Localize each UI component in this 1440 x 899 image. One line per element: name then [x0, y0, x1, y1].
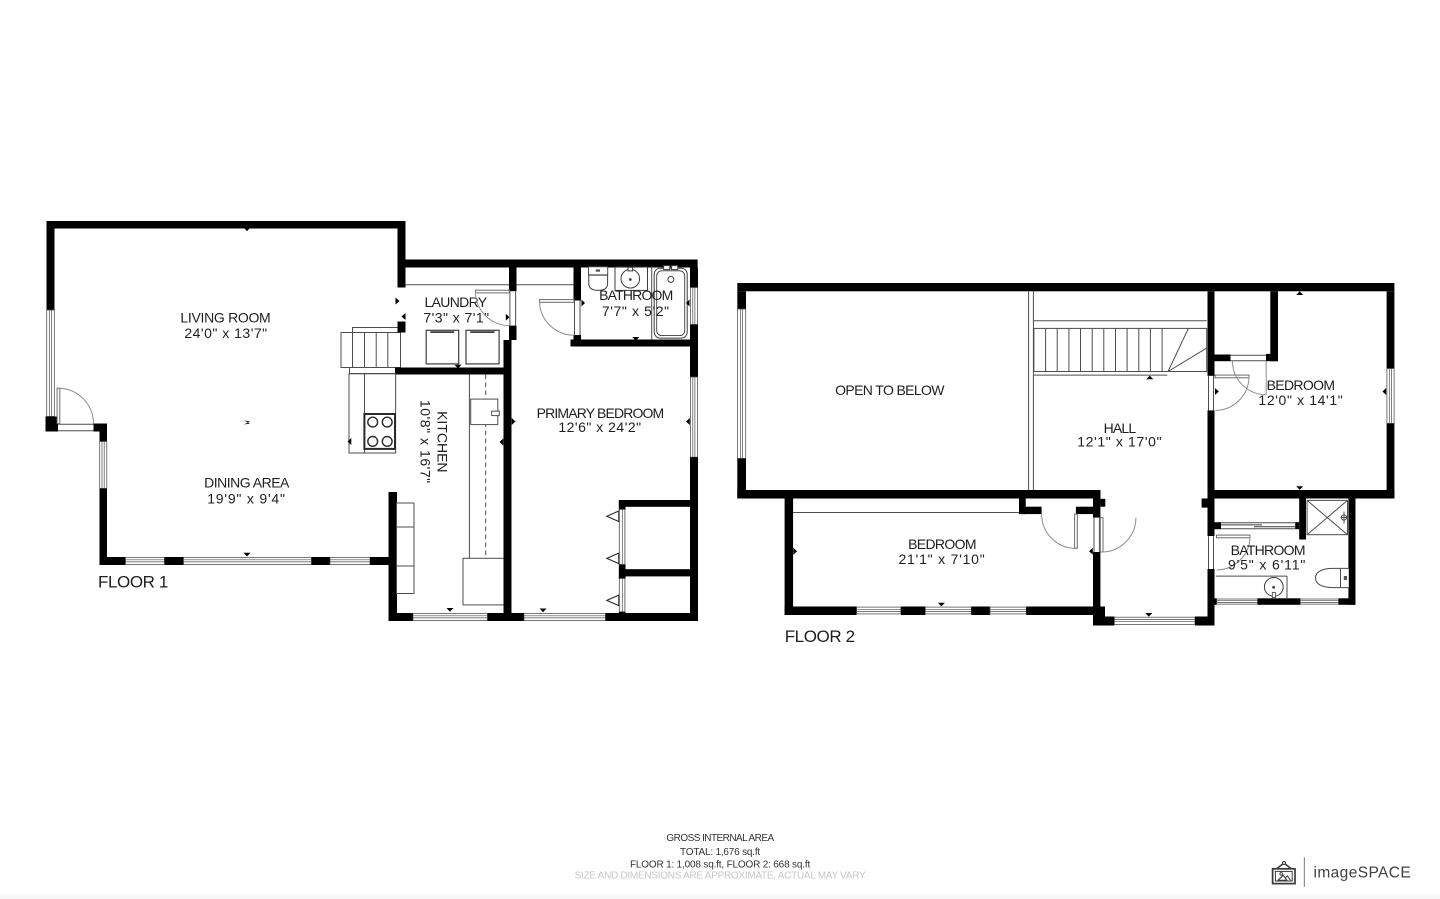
svg-text:BEDROOM: BEDROOM — [1267, 377, 1335, 393]
svg-text:9'5" x 6'11": 9'5" x 6'11" — [1228, 557, 1306, 573]
svg-text:TOTAL: 1,676 sq.ft: TOTAL: 1,676 sq.ft — [680, 847, 760, 858]
svg-text:12'1" x 17'0": 12'1" x 17'0" — [1077, 434, 1162, 450]
svg-text:DINING AREA: DINING AREA — [204, 475, 290, 491]
svg-text:21'1" x 7'10": 21'1" x 7'10" — [898, 551, 985, 567]
svg-text:KITCHEN: KITCHEN — [435, 411, 451, 472]
svg-text:GROSS INTERNAL AREA: GROSS INTERNAL AREA — [666, 833, 774, 844]
svg-text:SIZE AND DIMENSIONS ARE APPROX: SIZE AND DIMENSIONS ARE APPROXIMATE, ACT… — [575, 871, 866, 882]
svg-text:7'3" x 7'1": 7'3" x 7'1" — [423, 309, 489, 325]
svg-text:12'6" x 24'2": 12'6" x 24'2" — [558, 419, 641, 435]
svg-text:12'0" x 14'1": 12'0" x 14'1" — [1258, 392, 1343, 408]
svg-text:imageSPACE: imageSPACE — [1314, 865, 1412, 882]
svg-text:BATHROOM: BATHROOM — [1231, 542, 1305, 558]
svg-text:19'9" x 9'4": 19'9" x 9'4" — [207, 491, 286, 507]
svg-text:FLOOR 1: 1,008 sq.ft, FLOOR 2:: FLOOR 1: 1,008 sq.ft, FLOOR 2: 668 sq.ft — [630, 859, 811, 870]
svg-text:LIVING ROOM: LIVING ROOM — [180, 309, 270, 325]
svg-text:LAUNDRY: LAUNDRY — [425, 294, 488, 310]
svg-text:FLOOR 2: FLOOR 2 — [785, 627, 855, 646]
svg-text:OPEN TO BELOW: OPEN TO BELOW — [835, 382, 945, 398]
svg-text:7'7" x 5'2": 7'7" x 5'2" — [602, 303, 670, 319]
svg-text:24'0" x 13'7": 24'0" x 13'7" — [184, 325, 267, 341]
svg-text:BEDROOM: BEDROOM — [908, 536, 976, 552]
svg-text:10'8" x 16'7": 10'8" x 16'7" — [418, 400, 434, 484]
svg-text:FLOOR 1: FLOOR 1 — [98, 572, 168, 591]
svg-text:BATHROOM: BATHROOM — [599, 287, 673, 303]
